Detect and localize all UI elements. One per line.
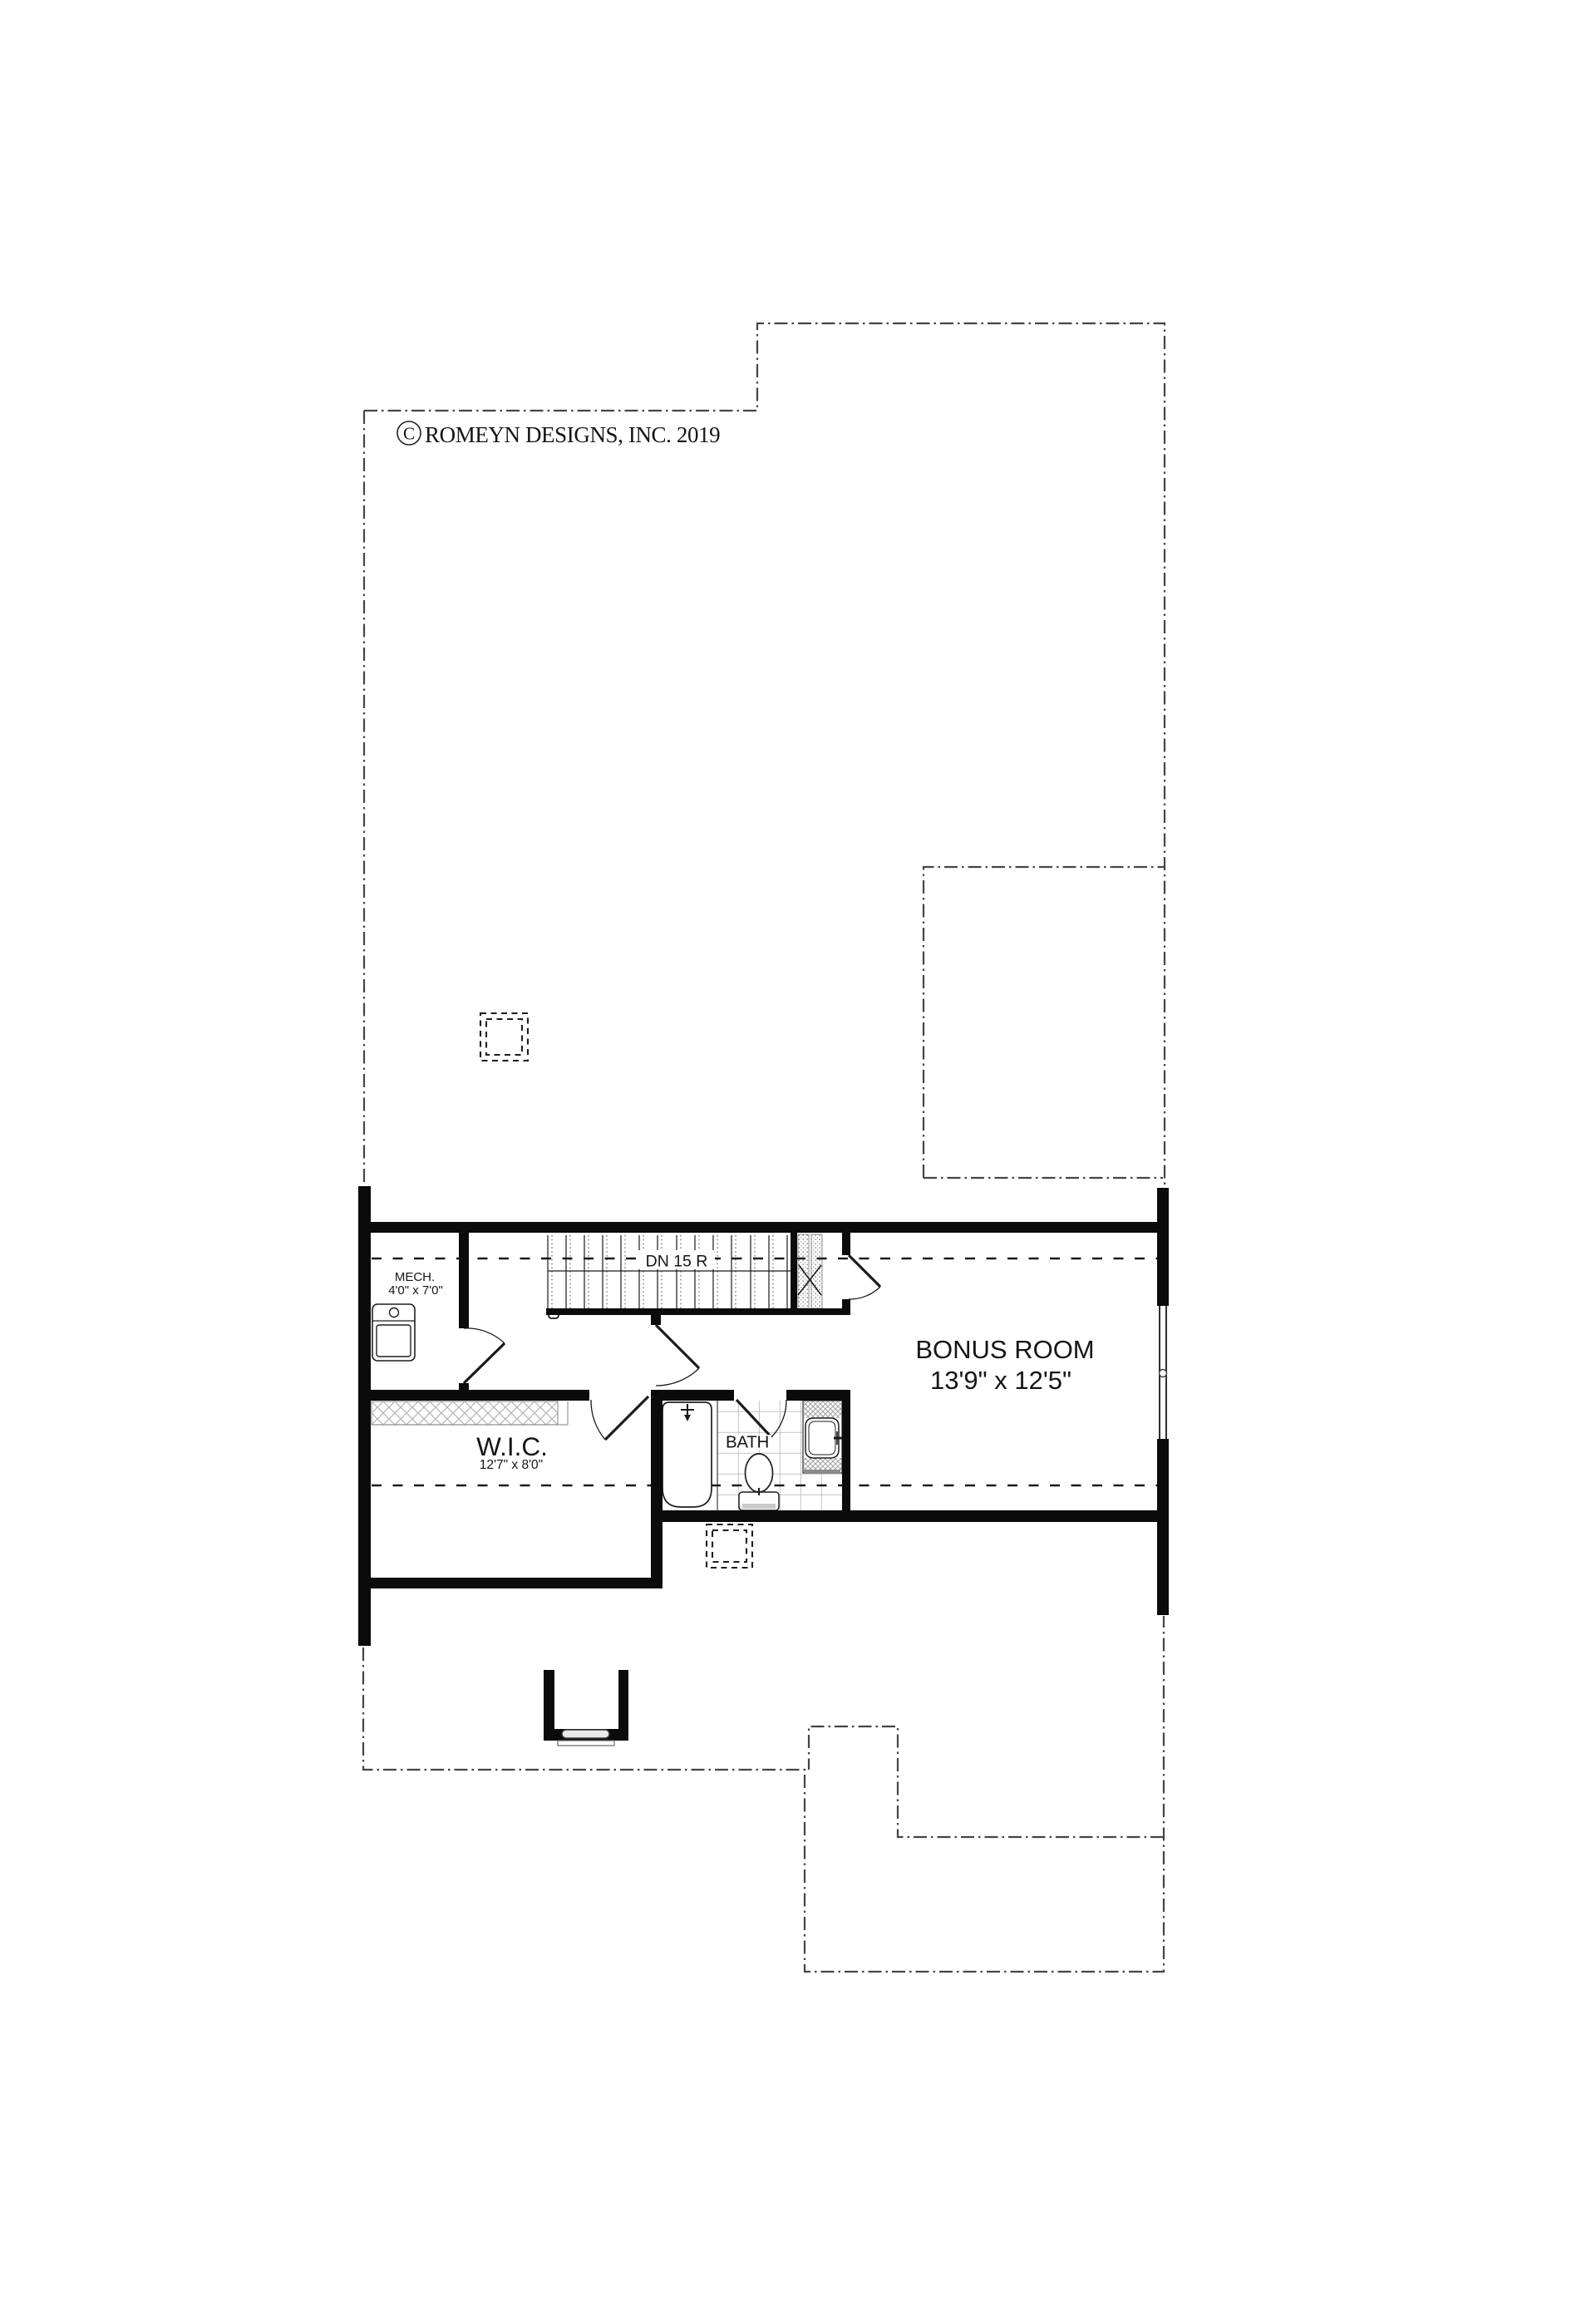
svg-text:13'9" x 12'5": 13'9" x 12'5" bbox=[930, 1366, 1071, 1395]
svg-text:4'0" x 7'0": 4'0" x 7'0" bbox=[388, 1283, 443, 1298]
svg-text:W.I.C.: W.I.C. bbox=[476, 1431, 548, 1461]
svg-text:BATH: BATH bbox=[726, 1433, 769, 1452]
svg-text:ROMEYN DESIGNS, INC. 2019: ROMEYN DESIGNS, INC. 2019 bbox=[425, 422, 720, 447]
svg-text:MECH.: MECH. bbox=[395, 1270, 435, 1284]
svg-text:BONUS ROOM: BONUS ROOM bbox=[915, 1335, 1094, 1364]
svg-text:C: C bbox=[403, 424, 415, 444]
svg-text:12'7" x 8'0": 12'7" x 8'0" bbox=[480, 1458, 543, 1472]
svg-text:DN 15 R: DN 15 R bbox=[646, 1253, 708, 1271]
